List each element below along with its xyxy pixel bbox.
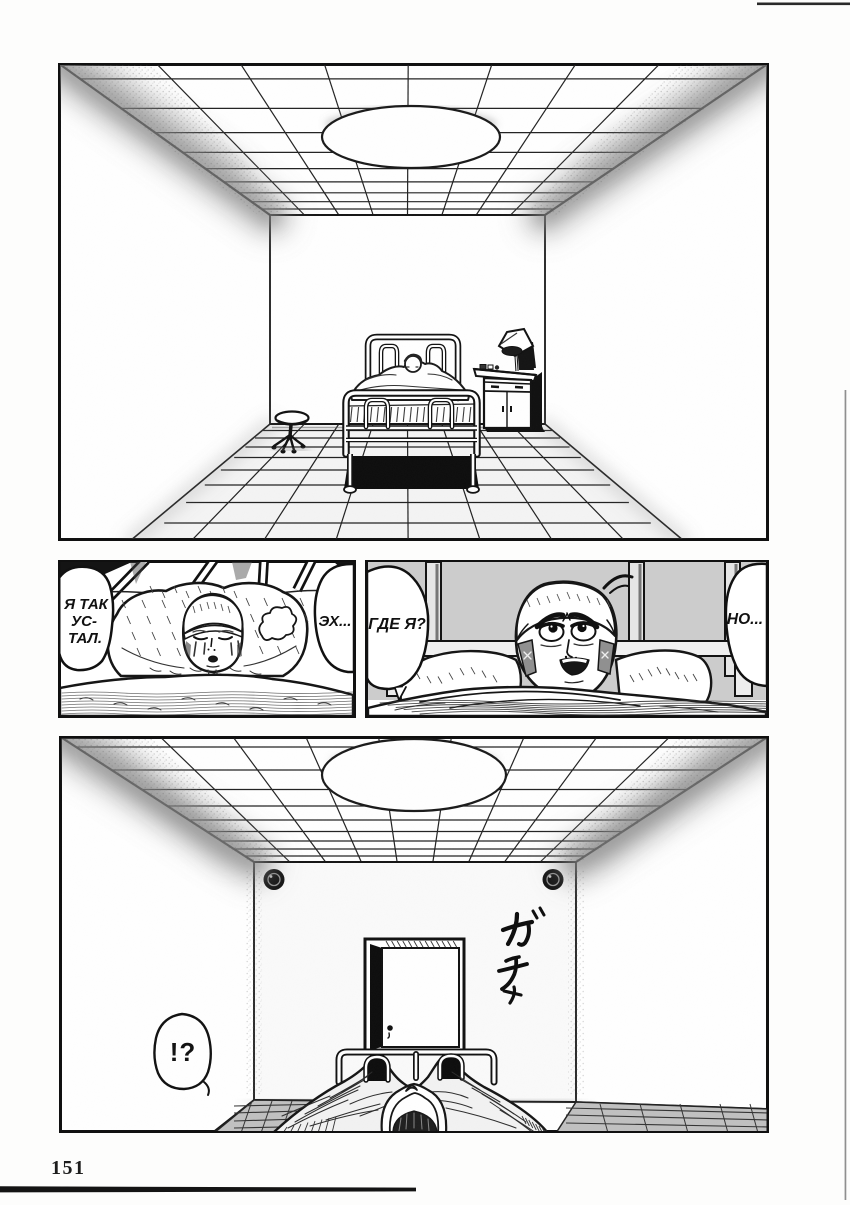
svg-text:151: 151 — [51, 1157, 86, 1179]
svg-text:ЭХ...: ЭХ... — [319, 613, 352, 630]
svg-text:ГДЕ Я?: ГДЕ Я? — [368, 616, 426, 633]
svg-text:УС-: УС- — [71, 613, 97, 630]
svg-text:Я ТАК: Я ТАК — [63, 596, 110, 613]
svg-text:ТАЛ.: ТАЛ. — [68, 630, 102, 647]
svg-text:НО...: НО... — [727, 611, 763, 628]
